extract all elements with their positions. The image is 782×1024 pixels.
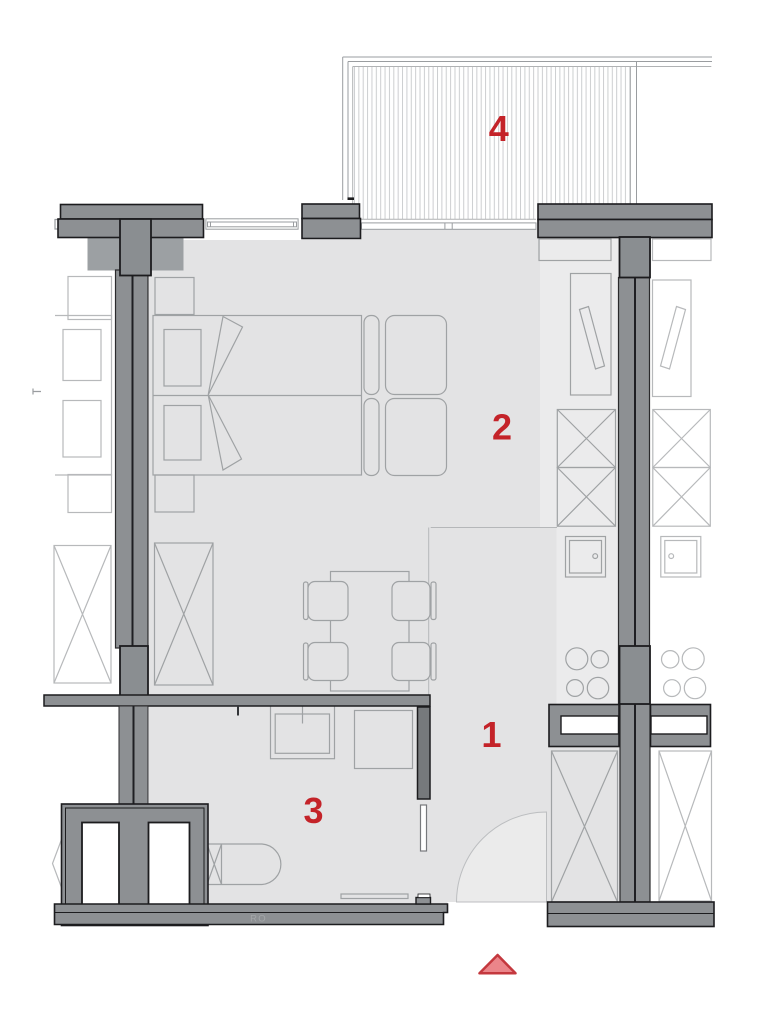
svg-text:RO: RO [250, 914, 267, 925]
svg-text:1: 1 [481, 714, 501, 755]
svg-text:4: 4 [489, 108, 509, 149]
svg-text:3: 3 [303, 790, 323, 831]
svg-text:2: 2 [492, 407, 512, 448]
